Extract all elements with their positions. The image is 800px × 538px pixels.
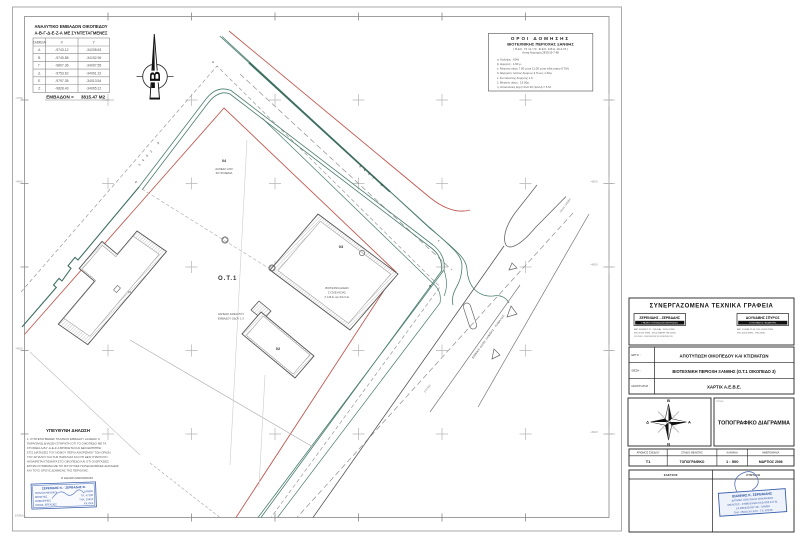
svg-text:ΣΤΙΣ ΔΙΑΤΑΞΕΙΣ ΤΟΥ ΝΟΜΟΥ ΠΕΡΙ: ΣΤΙΣ ΔΙΑΤΑΞΕΙΣ ΤΟΥ ΝΟΜΟΥ ΠΕΡΙ ΚΑΘΟΡΙΣΜΟΥ… [27, 451, 111, 455]
svg-text:ΓΡΑΦΕΙΟ ΤΕΧΝΙΚΩΝ ΕΠΙΧΕΙΡΗΣΕΩΝ: ΓΡΑΦΕΙΟ ΤΕΧΝΙΚΩΝ ΕΠΙΧΕΙΡΗΣΕΩΝ [642, 322, 679, 325]
svg-text:δ. Ελαχιστο πλατος δρομων 2.5: δ. Ελαχιστο πλατος δρομων 2.5 εως 1.20μ. [497, 71, 553, 75]
svg-text:ΚΙΝ. 25410 69890 - ΤΗΛ 22630: ΚΙΝ. 25410 69890 - ΤΗΛ 22630 [737, 333, 766, 335]
svg-text:ΒΙΟΤΕΧΝΙΚΗΣ ΠΕΡΙΟΧΗΣ ΞΑΝΘΗΣ: ΒΙΟΤΕΧΝΙΚΗΣ ΠΕΡΙΟΧΗΣ ΞΑΝΘΗΣ [507, 41, 574, 46]
svg-text:ΕΛΕΓΧΟΣ: ΕΛΕΓΧΟΣ [664, 473, 678, 477]
svg-text:Α-Β-Γ-Δ-Ε-Ζ-Α ΜΕ ΣΥΝΤΕΤΑΓΜΕΝ: Α-Β-Γ-Δ-Ε-Ζ-Α ΜΕ ΣΥΝΤΕΤΑΓΜΕΝΕΣ [34, 31, 107, 36]
svg-text:ΟΡΟΙ ΔΟΜΗΣΗΣ: ΟΡΟΙ ΔΟΜΗΣΗΣ [511, 36, 570, 41]
svg-text:ΑΥΘΑΙΡΕΤΑ ΚΤΙΣΜΑΤΑ ΣΤΟ ΟΙΚΟΠΕΔ: ΑΥΘΑΙΡΕΤΑ ΚΤΙΣΜΑΤΑ ΣΤΟ ΟΙΚΟΠΕΔΟ ΚΑΙ ΟΤΙ … [27, 460, 109, 464]
svg-text:Β: Β [667, 398, 670, 403]
svg-text:ΕΡΓΟ :: ΕΡΓΟ : [632, 353, 641, 357]
svg-text:01: 01 [128, 290, 132, 294]
svg-text:ΕΜΒΑΔΟΥ ΟΔΟΥ 1.Χ: ΕΜΒΑΔΟΥ ΟΔΟΥ 1.Χ [218, 316, 244, 320]
svg-text:ΕΜΒΑΔ.: ΕΜΒΑΔ. [15, 514, 27, 518]
svg-text:ΑΠΟΤΥΠΩΣΗ ΟΙΚΟΠΕΔΟΥ ΚΑΙ ΚΤΙ: ΑΠΟΤΥΠΩΣΗ ΟΙΚΟΠΕΔΟΥ ΚΑΙ ΚΤΙΣΜΑΤΩΝ [680, 354, 769, 359]
svg-text:ΣΚΥΡΟΔΕΜΑ: ΣΚΥΡΟΔΕΜΑ [216, 171, 233, 175]
svg-text:ΑΡΙΘΜΟΣ ΣΧΕΔΙΟΥ: ΑΡΙΘΜΟΣ ΣΧΕΔΙΟΥ [637, 452, 660, 455]
svg-text:1 : 500: 1 : 500 [726, 459, 739, 464]
svg-text:ΥΠΕΥΘΥΝΗ ΔΗΛΩΣΗ: ΥΠΕΥΘΥΝΗ ΔΗΛΩΣΗ [46, 428, 90, 433]
svg-text:η. Αποστασεις Δ(μ.)=3+0.10 (12: η. Αποστασεις Δ(μ.)=3+0.10 (12+Η) = 5 Μ. [497, 85, 552, 89]
svg-text:ΤΟΥ ΑΙΓΙΑΛΟΥ ΚΑΙ ΤΗΣ ΠΑΡΑΛΙΑΣ: ΤΟΥ ΑΙΓΙΑΛΟΥ ΚΑΙ ΤΗΣ ΠΑΡΑΛΙΑΣ ΚΑΙ ΟΤΙ ΔΕ… [27, 455, 108, 459]
svg-text:Γ: Γ [38, 64, 40, 68]
svg-text:-34065.12: -34065.12 [86, 87, 101, 91]
svg-text:ΙΔΙΟΚΤΗΤΗΣ :: ΙΔΙΟΚΤΗΤΗΣ : [632, 384, 650, 388]
svg-text:ε. Συντελεστης δομησης 1.6: ε. Συντελεστης δομησης 1.6 [497, 76, 533, 80]
svg-text:Τ.Κ. 67100: Τ.Κ. 67100 [81, 493, 94, 497]
svg-text:Α: Α [212, 60, 214, 64]
svg-text:ΣΥΝΤΑΞΗ: ΣΥΝΤΑΞΗ [746, 473, 760, 477]
svg-text:ΣΤΟΙΧΕΙΑ Α-Β-Γ-Δ-Ε-Ζ-Α ΒΡΙΣΚΕΤ: ΣΤΟΙΧΕΙΑ Α-Β-Γ-Δ-Ε-Ζ-Α ΒΡΙΣΚΕΤΑΙ ΚΑΙ ΔΕΝ… [27, 446, 101, 450]
svg-text:ΒΑΣ. ΣΟΦΙΑΣ 21-54, ΤΗΛ. 25410: ΒΑΣ. ΣΟΦΙΑΣ 21-54, ΤΗΛ. 25410 22890 [737, 328, 774, 331]
svg-text:ΚΑΙ ΤΟΥΣ ΟΡΟΥΣ ΔΟΜΗΣΗΣ ΤΗΣ ΠΕΡ: ΚΑΙ ΤΟΥΣ ΟΡΟΥΣ ΔΟΜΗΣΗΣ ΤΗΣ ΠΕΡΙΟΧΗΣ. [27, 469, 89, 473]
svg-text:ΕΜΒΑΔΟΝ =: ΕΜΒΑΔΟΝ = [46, 95, 74, 100]
svg-text:ΟΙΚΟΔ. ΕΡΓΑΣΙΕΣ: ΟΙΚΟΔ. ΕΡΓΑΣΙΕΣ [35, 502, 57, 507]
svg-text:ΣΤΑΔΙΟ ΜΕΛΕΤΗΣ: ΣΤΑΔΙΟ ΜΕΛΕΤΗΣ [681, 452, 703, 455]
svg-text:ΒΙΟΤΕΧΝΙΚΗ ΠΕΡΙΟΧΗ ΞΑΝΘΗΣ (Ο.Τ: ΒΙΟΤΕΧΝΙΚΗ ΠΕΡΙΟΧΗ ΞΑΝΘΗΣ (Ο.Τ.1 ΟΙΚΟΠΕΔ… [672, 369, 776, 374]
svg-text:ΑΝΑΛΥΤΙΚΟ ΕΜΒΑΔΟΝ ΟΙΚΟΠΕΔΟΥ: ΑΝΑΛΥΤΙΚΟ ΕΜΒΑΔΟΝ ΟΙΚΟΠΕΔΟΥ [34, 24, 107, 29]
svg-text:ΣΥΝΕΡΓΑΖΟΜΕΝΑ ΤΕΧΝΙΚΑ ΓΡΑΦΕΙ: ΣΥΝΕΡΓΑΖΟΜΕΝΑ ΤΕΧΝΙΚΑ ΓΡΑΦΕΙΑ [650, 304, 774, 310]
svg-text:Β: Β [147, 71, 164, 82]
svg-text:ΕΠΙΒΛΕΨΕΙΣ: ΕΠΙΒΛΕΨΕΙΣ [35, 498, 51, 503]
svg-text:ΣΗΜΕΙΑ: ΣΗΜΕΙΑ [33, 41, 47, 45]
svg-text:γ. Μεγιστο υψος 7.50 μ.και 11.: γ. Μεγιστο υψος 7.50 μ.και 11.00 μ.για ε… [497, 67, 569, 71]
svg-text:ΜΑΡΤΙΟΣ 2006: ΜΑΡΤΙΟΣ 2006 [759, 460, 783, 464]
svg-text:ΔΑΠΕΔΟ ΑΠΟ: ΔΑΠΕΔΟ ΑΠΟ [215, 167, 233, 171]
svg-text:-9797.35: -9797.35 [55, 79, 68, 83]
svg-text:ζ. Μεγιστο υψος : 15.00μ.: ζ. Μεγιστο υψος : 15.00μ. [497, 80, 530, 84]
svg-text:ΣΥΣΚΕΥΑΣΙΑΣ: ΣΥΣΚΕΥΑΣΙΑΣ [328, 290, 346, 294]
svg-text:Αποφ.Νομαρχη 2833/19-7-88: Αποφ.Νομαρχη 2833/19-7-88 [522, 51, 559, 55]
svg-text:ΧΧ.ΧΧΧ: ΧΧ.ΧΧΧ [84, 501, 94, 505]
svg-text:-4800: -4800 [15, 180, 23, 184]
svg-text:Ο.Τ.1: Ο.Τ.1 [218, 276, 237, 282]
svg-text:-34208.63: -34208.63 [86, 48, 101, 52]
svg-text:ΧΑΡΤΙΧ Α.Ε.Β.Ε.: ΧΑΡΤΙΧ Α.Ε.Β.Ε. [707, 385, 741, 390]
svg-text:1. ΣΥΝΤΕΤΑΓΜΕΝΕΣ ΠΛΑΤΕΟΣ ΕΜΒΑΔ: 1. ΣΥΝΤΕΤΑΓΜΕΝΕΣ ΠΛΑΤΕΟΣ ΕΜΒΑΔΟΥ ΞΑΝΘΗΣ … [27, 437, 101, 441]
svg-text:-34097.55: -34097.55 [86, 64, 101, 68]
svg-text:-9743.12: -9743.12 [55, 48, 68, 52]
svg-text:ΤΟΠΟΓΡΑΦΙΚΟ ΔΙΑΓΡΑΜΜΑ: ΤΟΠΟΓΡΑΦΙΚΟ ΔΙΑΓΡΑΜΜΑ [718, 421, 790, 427]
svg-text:ΜΕΛΕΤΕΣ: ΜΕΛΕΤΕΣ [35, 495, 48, 499]
svg-text:3815.47 Μ2: 3815.47 Μ2 [81, 95, 106, 100]
svg-text:-9745.88: -9745.88 [55, 56, 68, 60]
svg-text:α. Καλυψις : 60%: α. Καλυψις : 60% [497, 57, 520, 61]
svg-text:ΠΑΡΑΠΑΝΩ ΔΗΛΩΣΗ ΣΤΗΡΙΧΤΗ ΟΤΙ Τ: ΠΑΡΑΠΑΝΩ ΔΗΛΩΣΗ ΣΤΗΡΙΧΤΗ ΟΤΙ ΤΟ ΟΙΚΟΠΕΔΟ… [27, 442, 106, 446]
svg-text:ΤΟΠΟΓΡΑΦΟΣ ΓΕΩΜΕΤΡΗΣ: ΤΟΠΟΓΡΑΦΟΣ ΓΕΩΜΕΤΡΗΣ [749, 322, 777, 325]
svg-text:Δ: Δ [646, 420, 649, 425]
svg-text:-9828.43: -9828.43 [55, 87, 68, 91]
svg-text:Α: Α [688, 420, 691, 425]
svg-text:-4900: -4900 [590, 430, 598, 434]
svg-text:-4850: -4850 [590, 263, 598, 267]
svg-text:ΚΙΝ. 69744 79890 - 67100 ΞΑΝΘΗ: ΚΙΝ. 69744 79890 - 67100 ΞΑΝΘΗ ΤΗΛ 22630 [634, 332, 677, 335]
svg-text:-9807.36: -9807.36 [55, 64, 68, 68]
svg-text:ΧΧ ΧΧΧΧ - ΧΧΧΧΧΧΧΧΧ ΧΧ ΧΧΧΧΧΧΧ: ΧΧ ΧΧΧΧ - ΧΧΧΧΧΧΧΧΧ ΧΧ ΧΧΧΧΧΧΧ ΧΧ [634, 336, 673, 338]
svg-text:03: 03 [339, 244, 344, 249]
svg-text:ΒΙΟΤΕΧΝΙΑ ΕΙΔΩΝ: ΒΙΟΤΕΧΝΙΑ ΕΙΔΩΝ [325, 286, 348, 290]
svg-text:ΠΟΛ/ΚΟΙ ΜΗΧ/ΚΟΙ: ΠΟΛ/ΚΟΙ ΜΗΧ/ΚΟΙ [35, 490, 58, 495]
svg-text:Β: Β [429, 284, 431, 288]
svg-text:β. Δομηση : 1.60 μ.: β. Δομηση : 1.60 μ. [497, 62, 522, 66]
svg-text:ΤΟΠΟΓΡΑΦΙΚΟ: ΤΟΠΟΓΡΑΦΙΚΟ [680, 460, 705, 464]
svg-text:Ζ: Ζ [135, 180, 137, 184]
svg-text:Ν: Ν [667, 442, 670, 447]
svg-text:ΕΓΙΝΑΝ ΣΥΜΦΩΝΑ ΜΕ ΤΙΣ ΙΣΧΥΟΥΣΕ: ΕΓΙΝΑΝ ΣΥΜΦΩΝΑ ΜΕ ΤΙΣ ΙΣΧΥΟΥΣΕΣ ΠΟΛΕΟΔΟΜ… [27, 464, 119, 468]
svg-text:ΚΛΙΜΑΚΑ: ΚΛΙΜΑΚΑ [727, 452, 738, 455]
svg-text:ΖΕΡΕΝΙΔΗΣ - ΖΕΡΒΑΔΗΣ: ΖΕΡΕΝΙΔΗΣ - ΖΕΡΒΑΔΗΣ [639, 316, 680, 320]
svg-text:-34013.54: -34013.54 [86, 79, 101, 83]
svg-text:ΗΜΕΡΟΜΗΝΙΑ: ΗΜΕΡΟΜΗΝΙΑ [762, 452, 780, 455]
svg-text:ΒΑΣ. ΚΩΝ/ΝΟΥ 37 - ΤΗΛ.ΦΑΞ : 25: ΒΑΣ. ΚΩΝ/ΝΟΥ 37 - ΤΗΛ.ΦΑΞ : 25410 22890 [634, 328, 676, 331]
svg-text:ΘΕΣΗ :: ΘΕΣΗ : [632, 369, 642, 373]
svg-text:ΞΑΝΘΗ: ΞΑΝΘΗ [84, 489, 93, 493]
svg-text:-4800: -4800 [590, 180, 598, 184]
svg-text:Τ1: Τ1 [646, 459, 651, 464]
svg-text:-4750: -4750 [15, 96, 23, 100]
svg-text:ΔΟΥΝΑΒΗΣ ΣΠΥΡΟΣ: ΔΟΥΝΑΒΗΣ ΣΠΥΡΟΣ [746, 316, 780, 320]
svg-text:-4900: -4900 [15, 347, 23, 351]
svg-text:02: 02 [276, 346, 281, 351]
svg-text:-34152.96: -34152.96 [86, 56, 101, 60]
svg-text:ΔΑΠΕΔΟ ΑΣΦΑΛΤΟΥ: ΔΑΠΕΔΟ ΑΣΦΑΛΤΟΥ [218, 312, 244, 316]
svg-text:ΤΙΤΛΟΣ: ΤΙΤΛΟΣ [716, 401, 724, 403]
svg-text:-9753.62: -9753.62 [55, 71, 68, 75]
svg-text:Ο ΔΗΛΩΝ ΜΗΧΑΝΙΚΟΣ: Ο ΔΗΛΩΝ ΜΗΧΑΝΙΚΟΣ [61, 476, 93, 480]
svg-text:Ζ: Ζ [38, 87, 40, 91]
svg-text:-34061.22: -34061.22 [86, 71, 101, 75]
svg-text:ΤΗΛ. 25410: ΤΗΛ. 25410 [79, 497, 94, 502]
svg-text:Χ.Α.Β.Ε. και ΣΙΑ Ο.Ε.: Χ.Α.Β.Ε. και ΣΙΑ Ο.Ε. [324, 295, 350, 299]
